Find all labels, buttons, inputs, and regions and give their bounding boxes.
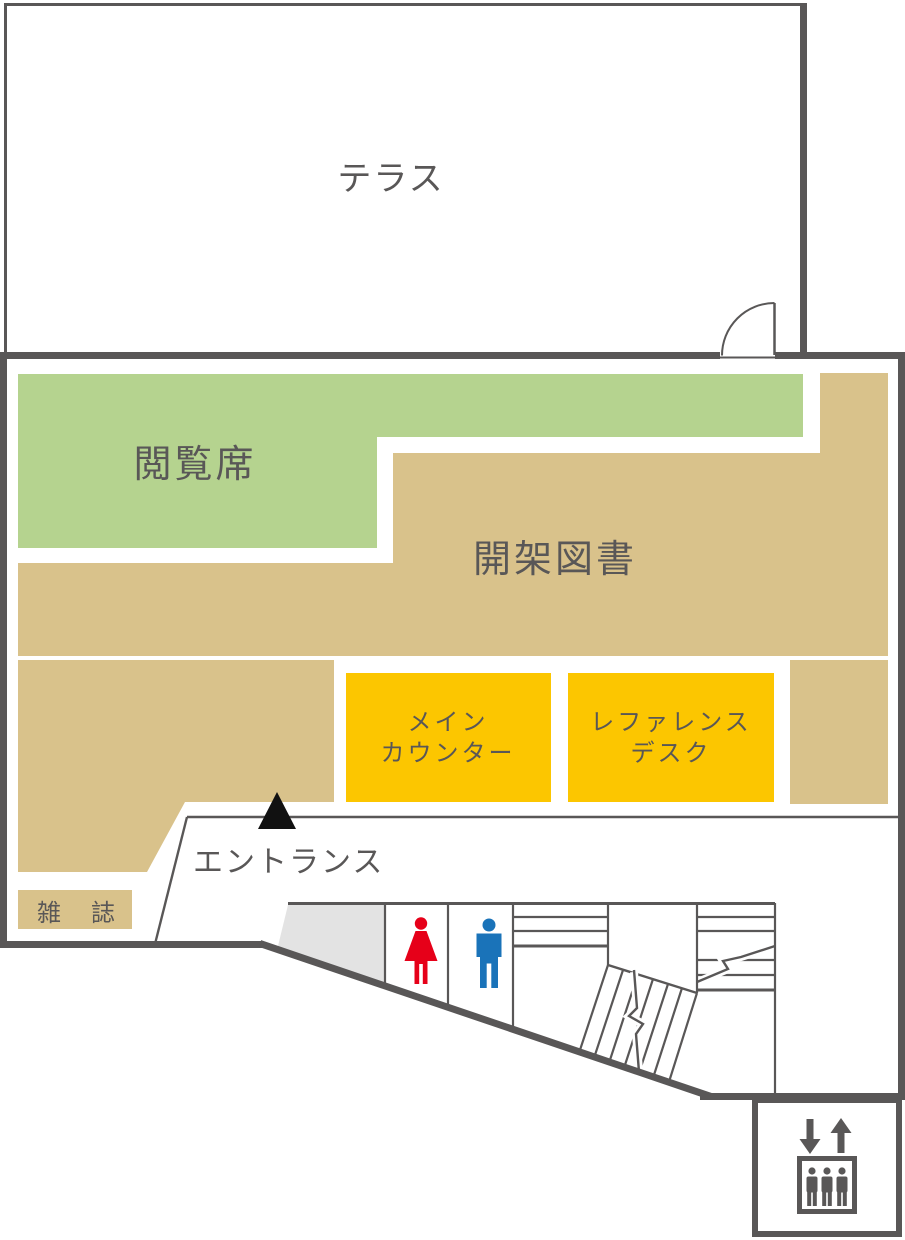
reading-seats-label: 閲覧席	[133, 444, 256, 486]
open-stacks-label: 開架図書	[473, 539, 637, 581]
terrace-label: テラス	[337, 160, 444, 198]
browsing-area-right	[790, 660, 888, 804]
main-counter-box	[346, 673, 551, 802]
entrance-label: エントランス	[193, 846, 384, 879]
browsing-area-left	[18, 660, 334, 872]
stairs-left-flight	[513, 917, 608, 946]
female-toilet-icon	[405, 917, 438, 984]
door-swing-arc	[722, 303, 775, 356]
elevator-icon	[800, 1159, 855, 1212]
main-counter-label-line1: メイン	[408, 709, 489, 736]
library-floor-plan: テラス 閲覧席 開架図書 メイン カウンター レファレンス デスク エントランス…	[0, 0, 905, 1240]
male-toilet-icon	[477, 919, 502, 989]
floor-plan-canvas: テラス 閲覧席 開架図書 メイン カウンター レファレンス デスク エントランス…	[0, 0, 905, 1240]
magazines-label: 雑誌	[37, 900, 145, 927]
main-counter-label-line2: カウンター	[381, 740, 516, 767]
slope-area	[277, 905, 385, 987]
reference-desk-label-line1: レファレンス	[590, 709, 752, 736]
terrace-door	[722, 303, 775, 356]
stairs-right-flight	[697, 917, 775, 990]
reference-desk-label-line2: デスク	[631, 740, 712, 767]
stairs-middle-flight	[579, 965, 697, 1085]
reference-desk-box	[568, 673, 774, 802]
